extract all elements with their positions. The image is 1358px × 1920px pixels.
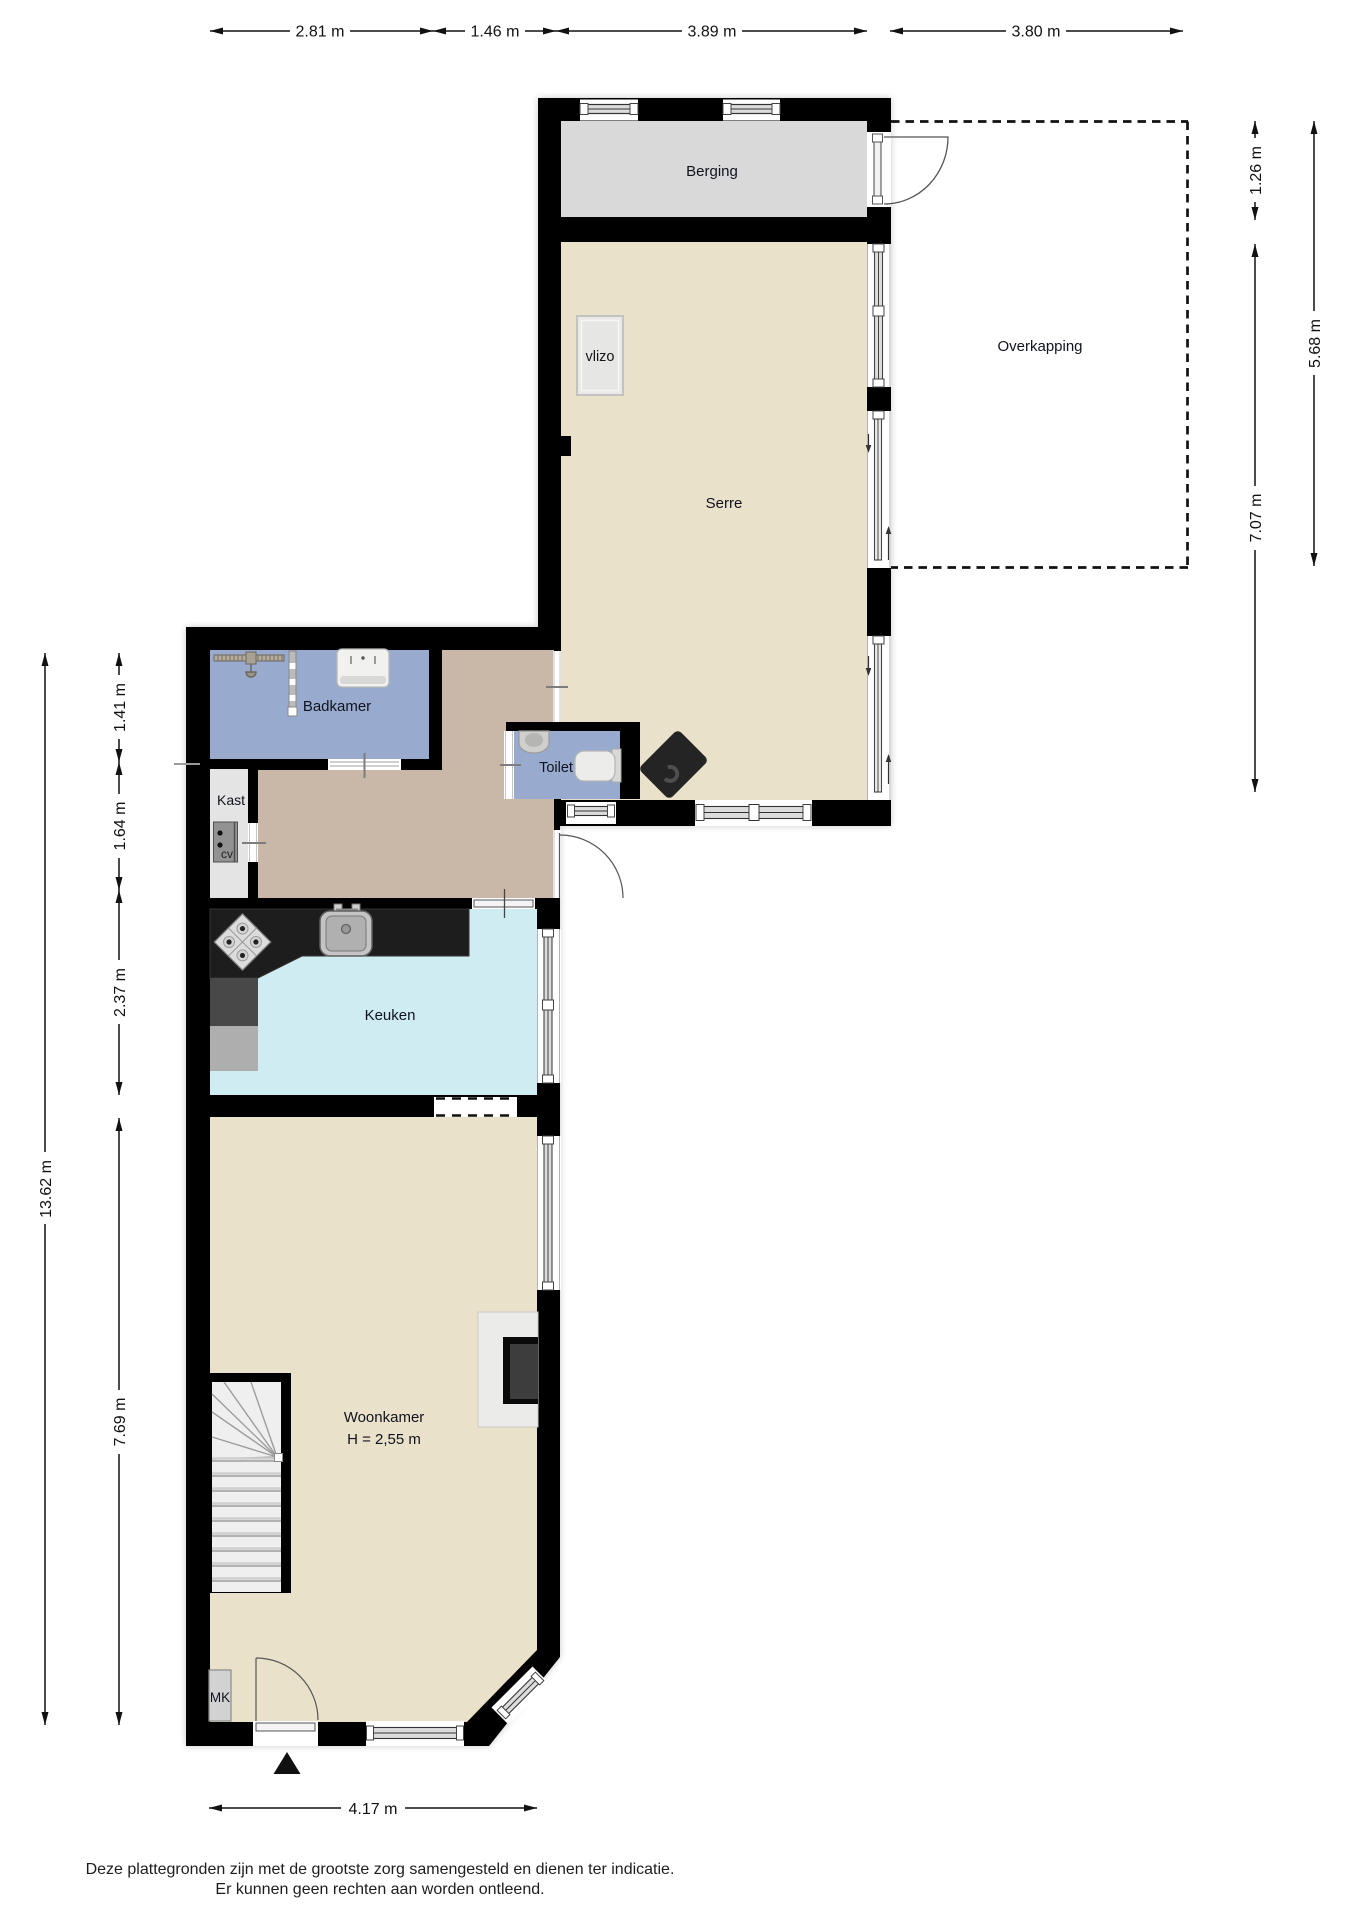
svg-text:H = 2,55 m: H = 2,55 m bbox=[347, 1431, 421, 1448]
svg-text:Overkapping: Overkapping bbox=[997, 338, 1082, 355]
svg-text:5.68 m: 5.68 m bbox=[1307, 319, 1324, 368]
svg-text:Badkamer: Badkamer bbox=[303, 698, 371, 715]
svg-text:2.81 m: 2.81 m bbox=[296, 24, 345, 41]
svg-text:1.26 m: 1.26 m bbox=[1248, 146, 1265, 195]
svg-text:Toilet: Toilet bbox=[539, 760, 573, 776]
svg-text:13.62 m: 13.62 m bbox=[38, 1160, 55, 1218]
svg-text:7.69 m: 7.69 m bbox=[112, 1398, 129, 1447]
svg-text:4.17 m: 4.17 m bbox=[349, 1801, 398, 1818]
svg-text:Deze plattegronden zijn met de: Deze plattegronden zijn met de grootste … bbox=[86, 1861, 675, 1878]
svg-text:Keuken: Keuken bbox=[365, 1007, 416, 1024]
svg-text:vlizo: vlizo bbox=[585, 349, 614, 365]
svg-text:7.07 m: 7.07 m bbox=[1248, 494, 1265, 543]
svg-text:Kast: Kast bbox=[217, 792, 245, 808]
svg-text:1.41 m: 1.41 m bbox=[112, 683, 129, 732]
svg-text:3.89 m: 3.89 m bbox=[688, 24, 737, 41]
svg-text:Berging: Berging bbox=[686, 163, 738, 180]
svg-text:Woonkamer: Woonkamer bbox=[344, 1409, 425, 1426]
svg-text:Serre: Serre bbox=[706, 495, 743, 512]
svg-text:1.64 m: 1.64 m bbox=[112, 802, 129, 851]
svg-text:3.80 m: 3.80 m bbox=[1012, 24, 1061, 41]
svg-text:MK: MK bbox=[210, 1690, 230, 1705]
svg-text:Er kunnen geen rechten aan wor: Er kunnen geen rechten aan worden ontlee… bbox=[215, 1881, 544, 1898]
svg-text:1.46 m: 1.46 m bbox=[471, 24, 520, 41]
svg-text:2.37 m: 2.37 m bbox=[112, 968, 129, 1017]
svg-text:cv: cv bbox=[221, 847, 233, 861]
